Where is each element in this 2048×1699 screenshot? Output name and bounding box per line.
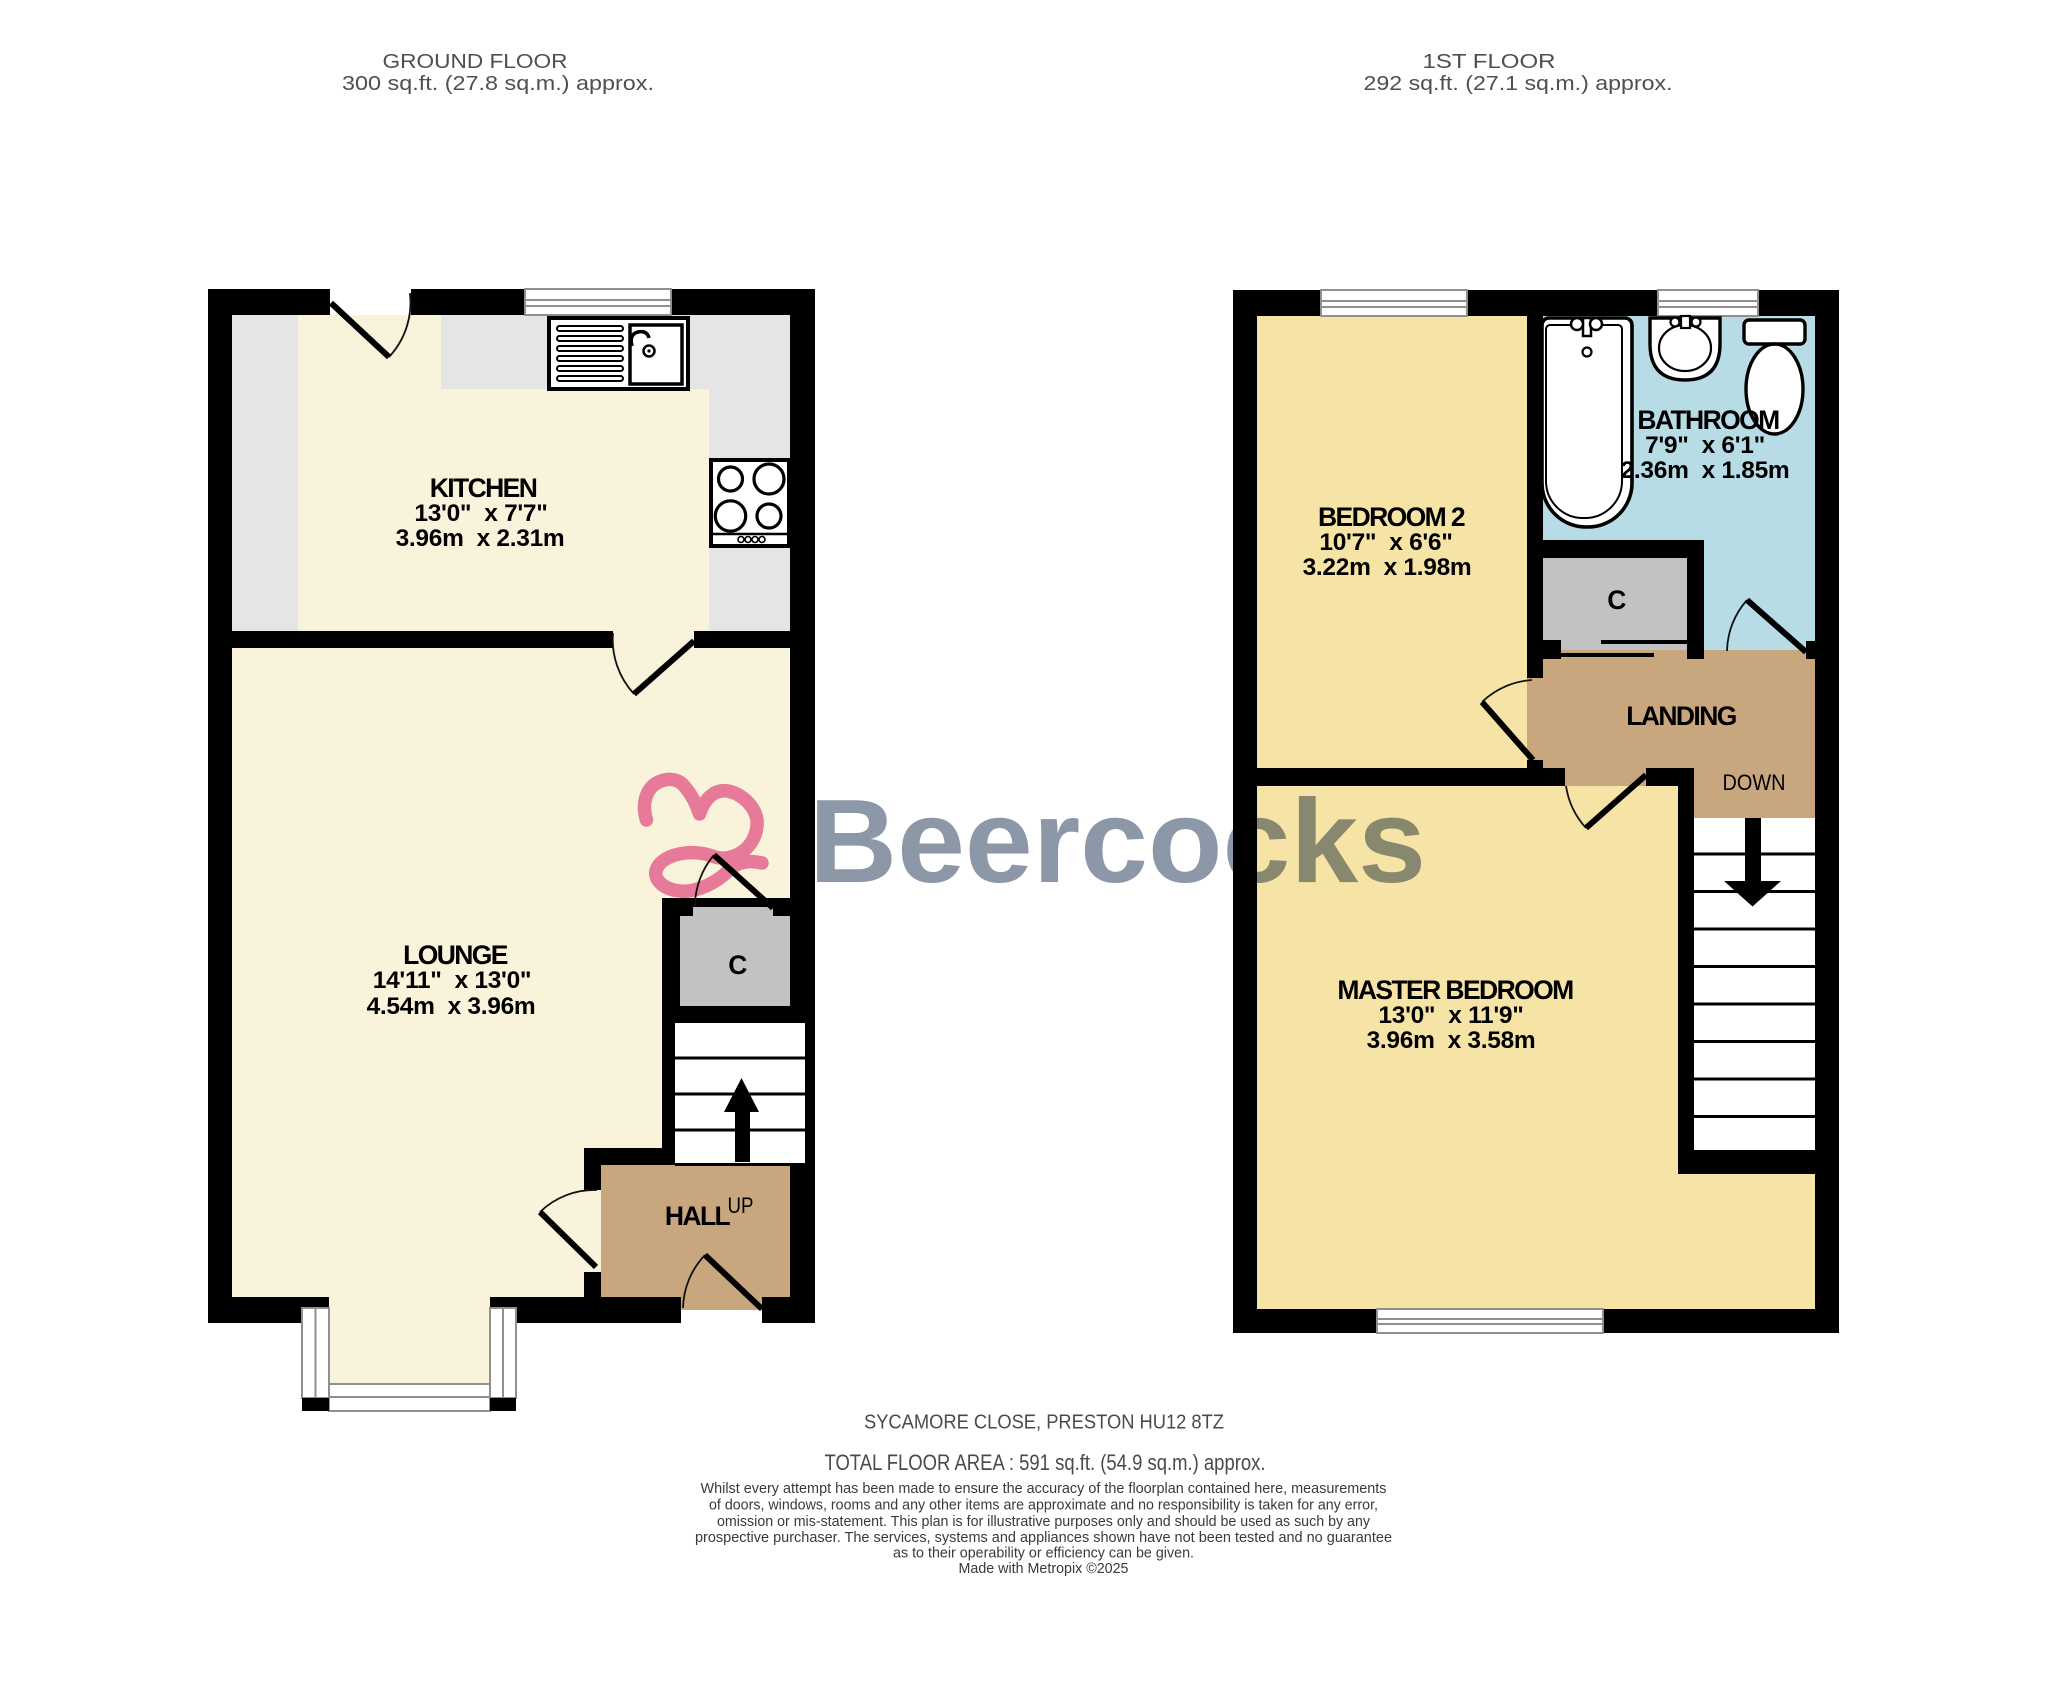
svg-text:Beercocks: Beercocks xyxy=(809,776,1426,908)
